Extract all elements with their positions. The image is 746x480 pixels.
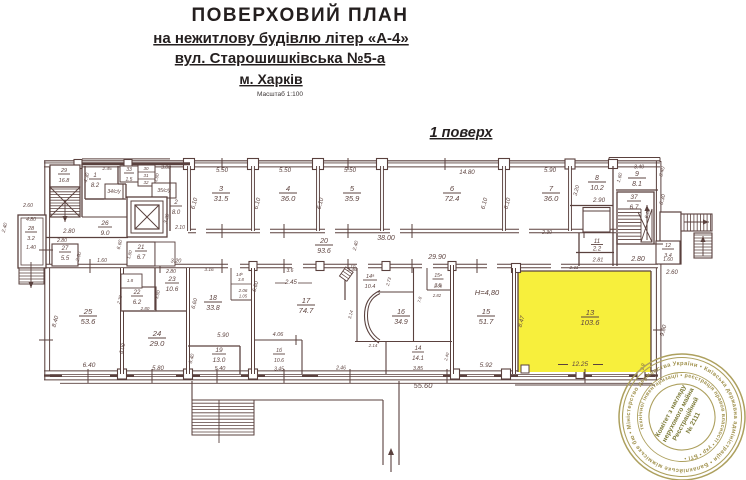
svg-text:5.92: 5.92 — [480, 362, 493, 369]
svg-text:37: 37 — [630, 194, 638, 201]
svg-text:27: 27 — [61, 246, 69, 252]
svg-text:3.20: 3.20 — [573, 184, 582, 197]
svg-text:14.80: 14.80 — [459, 169, 475, 176]
svg-text:2.40: 2.40 — [443, 351, 450, 362]
svg-text:2.82: 2.82 — [432, 293, 442, 298]
svg-text:2.80: 2.80 — [140, 306, 150, 311]
svg-text:74.7: 74.7 — [299, 306, 315, 315]
svg-text:2.80: 2.80 — [165, 269, 176, 275]
svg-text:2.81: 2.81 — [592, 258, 604, 264]
svg-text:1.5: 1.5 — [126, 177, 133, 183]
svg-text:6: 6 — [450, 184, 455, 193]
svg-text:3: 3 — [219, 184, 224, 193]
svg-text:8.1: 8.1 — [632, 181, 642, 188]
svg-text:2.11: 2.11 — [569, 265, 579, 271]
svg-text:10.6: 10.6 — [274, 358, 284, 364]
svg-text:2.40: 2.40 — [1, 222, 10, 234]
svg-text:4.30: 4.30 — [83, 172, 91, 183]
svg-text:8.40: 8.40 — [658, 166, 666, 177]
svg-text:8.40: 8.40 — [52, 315, 61, 328]
svg-text:ПОВЕРХОВИЙ ПЛАН: ПОВЕРХОВИЙ ПЛАН — [192, 4, 409, 26]
svg-text:12.25: 12.25 — [572, 361, 589, 368]
svg-text:16.8: 16.8 — [59, 178, 71, 184]
svg-text:3.80: 3.80 — [154, 289, 161, 299]
svg-text:38.00: 38.00 — [377, 235, 395, 242]
svg-text:2.45: 2.45 — [284, 280, 297, 286]
svg-text:14ᵃ: 14ᵃ — [366, 274, 375, 280]
svg-text:2.80: 2.80 — [630, 256, 645, 263]
svg-text:на нежитлову будівлю літер «А-: на нежитлову будівлю літер «А-4» — [153, 30, 408, 47]
svg-text:м. Харків: м. Харків — [239, 71, 303, 87]
svg-text:2.14: 2.14 — [368, 343, 378, 348]
svg-text:1б: 1б — [276, 348, 283, 354]
svg-text:51.7: 51.7 — [479, 317, 495, 326]
svg-text:2.06: 2.06 — [238, 288, 248, 293]
svg-text:16: 16 — [397, 309, 405, 316]
svg-text:2.80: 2.80 — [56, 238, 67, 244]
svg-text:13: 13 — [586, 308, 595, 317]
svg-text:1.60: 1.60 — [663, 257, 673, 263]
svg-text:6.40: 6.40 — [83, 362, 96, 369]
svg-text:1.05: 1.05 — [239, 294, 248, 299]
svg-text:1 поверх: 1 поверх — [430, 125, 494, 141]
svg-text:17: 17 — [302, 296, 311, 305]
svg-text:12: 12 — [665, 243, 671, 249]
svg-text:33: 33 — [126, 167, 132, 173]
svg-text:2.60: 2.60 — [22, 203, 33, 209]
svg-text:31.5: 31.5 — [214, 194, 230, 203]
svg-text:1.40: 1.40 — [26, 245, 36, 251]
svg-text:1: 1 — [93, 173, 96, 179]
svg-text:1.60: 1.60 — [97, 258, 107, 264]
svg-text:3.46: 3.46 — [347, 267, 357, 273]
svg-text:6.60: 6.60 — [116, 239, 124, 250]
svg-text:2: 2 — [173, 200, 178, 206]
svg-text:19: 19 — [215, 347, 223, 354]
svg-text:31: 31 — [143, 173, 149, 178]
svg-text:6.10: 6.10 — [254, 197, 263, 210]
svg-text:18: 18 — [209, 295, 217, 302]
svg-text:6.10: 6.10 — [191, 197, 200, 210]
svg-text:2.10: 2.10 — [174, 225, 185, 231]
svg-text:10.4: 10.4 — [365, 284, 376, 290]
svg-text:2.60: 2.60 — [665, 270, 678, 276]
svg-text:29.90: 29.90 — [427, 254, 446, 261]
svg-text:53.6: 53.6 — [81, 317, 97, 326]
svg-text:35.9: 35.9 — [345, 194, 361, 203]
svg-text:2.73: 2.73 — [385, 276, 392, 287]
svg-text:29.0: 29.0 — [149, 339, 166, 348]
svg-text:H=4,80: H=4,80 — [475, 288, 500, 297]
svg-text:8.2: 8.2 — [91, 183, 100, 189]
svg-text:5.90: 5.90 — [544, 167, 557, 174]
svg-text:2.46: 2.46 — [335, 366, 346, 372]
svg-text:Масштаб 1:100: Масштаб 1:100 — [257, 90, 303, 98]
svg-text:22: 22 — [133, 290, 141, 296]
svg-text:6.60: 6.60 — [191, 297, 200, 310]
svg-text:9: 9 — [635, 171, 639, 178]
svg-text:20: 20 — [319, 238, 328, 245]
svg-text:33.8: 33.8 — [206, 305, 220, 312]
svg-text:5.5: 5.5 — [61, 256, 70, 262]
svg-text:2.88: 2.88 — [433, 284, 443, 289]
svg-text:7: 7 — [549, 184, 554, 193]
svg-text:6.10: 6.10 — [481, 197, 490, 210]
svg-text:25: 25 — [83, 307, 93, 316]
svg-text:30: 30 — [143, 166, 149, 171]
svg-text:8.0: 8.0 — [172, 210, 181, 216]
svg-text:93.6: 93.6 — [317, 248, 331, 255]
svg-text:5.90: 5.90 — [217, 333, 229, 339]
svg-text:15ᵃ: 15ᵃ — [434, 273, 442, 279]
svg-text:24: 24 — [152, 329, 161, 338]
svg-text:1.80: 1.80 — [153, 172, 160, 182]
svg-text:72.4: 72.4 — [445, 194, 460, 203]
svg-text:36.0: 36.0 — [544, 194, 560, 203]
svg-text:4.80: 4.80 — [26, 217, 36, 223]
svg-text:26: 26 — [100, 220, 109, 227]
svg-text:5.50: 5.50 — [344, 167, 357, 174]
svg-text:55.60: 55.60 — [414, 381, 434, 390]
svg-text:4: 4 — [286, 184, 290, 193]
svg-text:1.8: 1.8 — [127, 278, 134, 283]
svg-text:6.7: 6.7 — [629, 204, 638, 211]
svg-text:5.80: 5.80 — [152, 366, 164, 372]
svg-text:5: 5 — [350, 184, 355, 193]
svg-text:13.0: 13.0 — [213, 357, 226, 364]
svg-text:15: 15 — [482, 307, 491, 316]
svg-text:8: 8 — [595, 175, 599, 182]
svg-text:34/с/у: 34/с/у — [107, 189, 121, 195]
svg-text:1.60: 1.60 — [616, 172, 624, 183]
svg-text:35/с/у: 35/с/у — [157, 188, 171, 194]
svg-text:6.7: 6.7 — [137, 255, 146, 261]
svg-text:36.0: 36.0 — [281, 194, 297, 203]
svg-text:28: 28 — [27, 226, 35, 232]
svg-text:3.40: 3.40 — [634, 165, 644, 171]
svg-text:21: 21 — [137, 245, 145, 251]
svg-text:3.16: 3.16 — [204, 267, 214, 273]
svg-text:32: 32 — [143, 180, 149, 185]
svg-text:2.45: 2.45 — [101, 166, 112, 172]
svg-text:2.40: 2.40 — [352, 240, 361, 252]
svg-text:10.2: 10.2 — [590, 185, 604, 192]
svg-text:5.40: 5.40 — [215, 366, 227, 372]
svg-text:29: 29 — [60, 168, 67, 174]
svg-text:2.2: 2.2 — [592, 247, 602, 253]
svg-text:34.9: 34.9 — [394, 319, 408, 326]
svg-text:3.2: 3.2 — [27, 236, 35, 242]
svg-text:5.50: 5.50 — [279, 167, 292, 174]
svg-text:2.90: 2.90 — [592, 197, 606, 204]
svg-text:3.85: 3.85 — [413, 366, 423, 372]
svg-text:10.6: 10.6 — [166, 286, 179, 293]
svg-text:14.1: 14.1 — [412, 356, 424, 362]
svg-text:вул. Старошишківська №5-а: вул. Старошишківська №5-а — [175, 50, 386, 67]
svg-text:3.20: 3.20 — [171, 259, 183, 265]
svg-text:2.30: 2.30 — [541, 230, 552, 236]
svg-text:8.40: 8.40 — [188, 353, 196, 364]
svg-text:4.06: 4.06 — [273, 332, 285, 338]
svg-text:103.6: 103.6 — [580, 318, 600, 327]
svg-text:9.0: 9.0 — [100, 230, 109, 237]
svg-text:3.8: 3.8 — [238, 277, 244, 282]
svg-text:23: 23 — [167, 276, 176, 283]
svg-text:3.45: 3.45 — [274, 367, 284, 373]
svg-text:6.30: 6.30 — [659, 193, 668, 206]
svg-text:7.8: 7.8 — [416, 296, 423, 304]
svg-text:14: 14 — [415, 346, 422, 352]
svg-text:3.14: 3.14 — [347, 309, 354, 319]
svg-text:3.6: 3.6 — [287, 268, 294, 274]
svg-text:2.80: 2.80 — [62, 229, 75, 235]
